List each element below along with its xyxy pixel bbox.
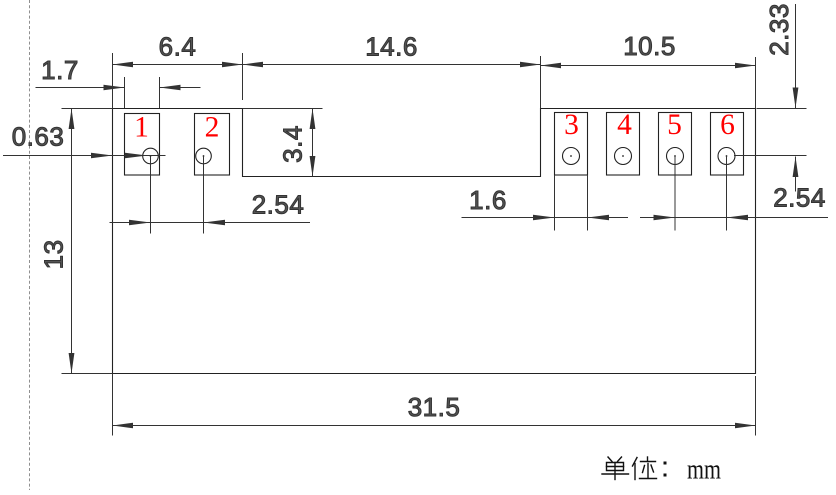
svg-text:1: 1 bbox=[134, 112, 149, 144]
svg-text:1.6: 1.6 bbox=[469, 185, 507, 215]
svg-text:3.4: 3.4 bbox=[278, 125, 308, 163]
svg-text:5: 5 bbox=[667, 109, 682, 141]
svg-text:1.7: 1.7 bbox=[41, 55, 79, 85]
svg-text:mm: mm bbox=[687, 455, 721, 485]
svg-text:4: 4 bbox=[617, 109, 632, 141]
svg-text:2.54: 2.54 bbox=[773, 183, 826, 213]
svg-text:6.4: 6.4 bbox=[159, 32, 197, 62]
svg-text:3: 3 bbox=[564, 109, 579, 141]
svg-text:13: 13 bbox=[39, 239, 69, 269]
svg-text:10.5: 10.5 bbox=[623, 31, 676, 61]
svg-text:31.5: 31.5 bbox=[408, 392, 461, 422]
svg-text:2.33: 2.33 bbox=[764, 3, 794, 56]
svg-text:2: 2 bbox=[205, 112, 220, 144]
svg-text:0.63: 0.63 bbox=[12, 122, 65, 152]
svg-text:14.6: 14.6 bbox=[365, 32, 418, 62]
svg-text:6: 6 bbox=[720, 109, 735, 141]
svg-text:2.54: 2.54 bbox=[252, 190, 305, 220]
